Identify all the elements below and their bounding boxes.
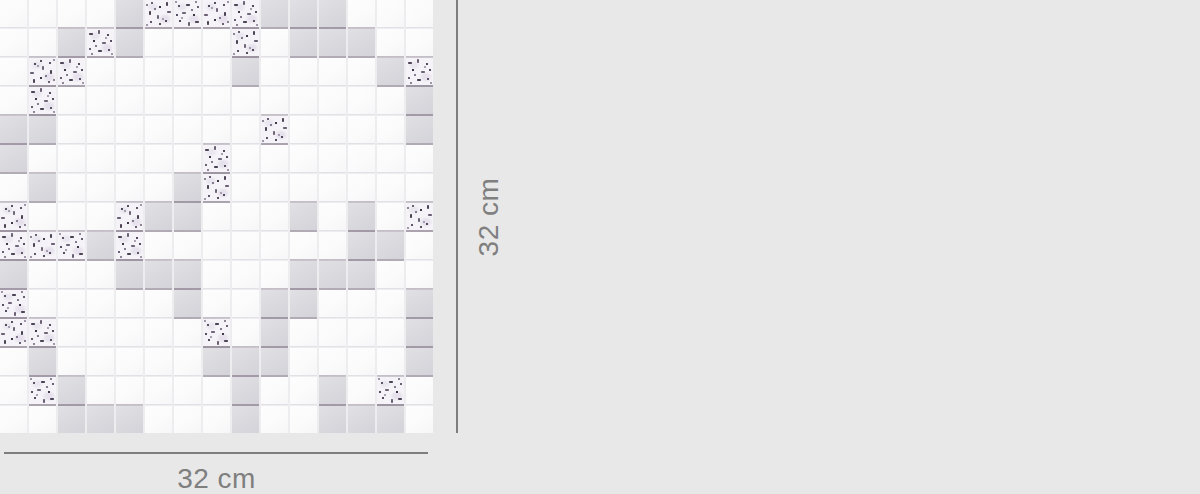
mosaic-tile <box>290 377 317 404</box>
height-dimension-text: 32 cm <box>473 177 505 256</box>
mosaic-tile <box>0 261 27 288</box>
mosaic-tile <box>406 0 433 27</box>
mosaic-tile <box>174 319 201 346</box>
mosaic-tile <box>116 0 143 27</box>
mosaic-tile <box>348 232 375 259</box>
mosaic-tile <box>406 116 433 143</box>
mosaic-tile <box>0 290 27 317</box>
mosaic-tile <box>58 290 85 317</box>
mosaic-tile <box>29 290 56 317</box>
mosaic-tile <box>261 116 288 143</box>
mosaic-tile <box>232 232 259 259</box>
mosaic-tile <box>203 261 230 288</box>
mosaic-tile <box>232 29 259 56</box>
mosaic-tile <box>377 348 404 375</box>
mosaic-tile <box>58 0 85 27</box>
mosaic-tile <box>116 203 143 230</box>
mosaic-tile <box>174 348 201 375</box>
mosaic-tile <box>348 87 375 114</box>
mosaic-tile <box>29 261 56 288</box>
mosaic-tile <box>87 0 114 27</box>
mosaic-tile <box>29 0 56 27</box>
mosaic-tile <box>319 377 346 404</box>
mosaic-tile <box>87 87 114 114</box>
mosaic-tile <box>406 29 433 56</box>
mosaic-tile <box>290 406 317 433</box>
mosaic-tile <box>145 319 172 346</box>
mosaic-tile <box>174 0 201 27</box>
mosaic-tile <box>261 0 288 27</box>
mosaic-tile <box>58 58 85 85</box>
mosaic-tile <box>261 232 288 259</box>
mosaic-tile <box>0 377 27 404</box>
mosaic-tile <box>29 406 56 433</box>
mosaic-tile <box>348 290 375 317</box>
mosaic-tile <box>87 261 114 288</box>
mosaic-tile <box>348 116 375 143</box>
mosaic-tile <box>29 29 56 56</box>
mosaic-tile <box>58 348 85 375</box>
mosaic-tile <box>145 29 172 56</box>
mosaic-tile <box>87 290 114 317</box>
mosaic-tile <box>377 377 404 404</box>
mosaic-tile <box>203 232 230 259</box>
mosaic-tile-sheet <box>0 0 433 433</box>
mosaic-tile <box>145 116 172 143</box>
mosaic-tile <box>406 348 433 375</box>
mosaic-tile <box>58 232 85 259</box>
mosaic-tile <box>0 58 27 85</box>
mosaic-tile <box>377 174 404 201</box>
mosaic-tile <box>261 377 288 404</box>
mosaic-tile <box>290 58 317 85</box>
mosaic-tile <box>116 87 143 114</box>
mosaic-tile <box>116 290 143 317</box>
mosaic-tile <box>348 0 375 27</box>
mosaic-tile <box>406 406 433 433</box>
mosaic-tile <box>319 116 346 143</box>
mosaic-tile <box>145 87 172 114</box>
mosaic-tile <box>87 348 114 375</box>
mosaic-tile <box>232 290 259 317</box>
mosaic-tile <box>174 145 201 172</box>
mosaic-tile <box>232 58 259 85</box>
mosaic-tile <box>348 29 375 56</box>
mosaic-tile <box>348 319 375 346</box>
mosaic-tile <box>58 116 85 143</box>
mosaic-tile <box>145 406 172 433</box>
mosaic-tile <box>406 145 433 172</box>
mosaic-tile <box>319 87 346 114</box>
mosaic-tile <box>319 406 346 433</box>
mosaic-tile <box>58 29 85 56</box>
mosaic-tile <box>87 116 114 143</box>
mosaic-tile <box>58 203 85 230</box>
mosaic-tile <box>348 348 375 375</box>
mosaic-tile <box>232 203 259 230</box>
mosaic-tile <box>0 319 27 346</box>
mosaic-tile <box>87 29 114 56</box>
mosaic-tile <box>0 0 27 27</box>
mosaic-tile <box>377 0 404 27</box>
mosaic-tile <box>377 145 404 172</box>
mosaic-tile <box>261 203 288 230</box>
mosaic-tile <box>377 29 404 56</box>
mosaic-tile <box>29 58 56 85</box>
mosaic-tile <box>348 145 375 172</box>
mosaic-tile <box>290 232 317 259</box>
mosaic-tile <box>203 145 230 172</box>
mosaic-tile <box>261 406 288 433</box>
mosaic-tile <box>290 87 317 114</box>
mosaic-tile <box>261 290 288 317</box>
mosaic-tile <box>116 261 143 288</box>
mosaic-tile <box>87 145 114 172</box>
mosaic-tile <box>203 406 230 433</box>
mosaic-tile <box>58 261 85 288</box>
mosaic-tile <box>116 58 143 85</box>
mosaic-tile <box>406 203 433 230</box>
width-dimension-line <box>4 452 428 454</box>
mosaic-tile <box>174 116 201 143</box>
mosaic-tile <box>0 116 27 143</box>
mosaic-tile <box>145 0 172 27</box>
mosaic-tile <box>319 348 346 375</box>
mosaic-tile <box>319 29 346 56</box>
mosaic-tile <box>319 261 346 288</box>
mosaic-tile <box>58 145 85 172</box>
mosaic-tile <box>290 116 317 143</box>
mosaic-tile <box>29 174 56 201</box>
mosaic-tile <box>290 319 317 346</box>
mosaic-tile <box>116 406 143 433</box>
mosaic-tile <box>87 319 114 346</box>
mosaic-tile <box>29 319 56 346</box>
mosaic-tile <box>319 290 346 317</box>
mosaic-tile <box>203 319 230 346</box>
mosaic-tile <box>290 261 317 288</box>
mosaic-tile <box>232 116 259 143</box>
mosaic-tile <box>290 203 317 230</box>
mosaic-tile <box>406 58 433 85</box>
mosaic-tile <box>174 232 201 259</box>
mosaic-tile <box>377 232 404 259</box>
mosaic-tile <box>406 174 433 201</box>
mosaic-tile <box>348 174 375 201</box>
mosaic-tile <box>261 319 288 346</box>
mosaic-tile <box>203 58 230 85</box>
mosaic-tile <box>145 174 172 201</box>
mosaic-tile <box>348 377 375 404</box>
mosaic-tile <box>232 174 259 201</box>
mosaic-tile <box>58 174 85 201</box>
mosaic-tile <box>290 348 317 375</box>
mosaic-tile <box>116 377 143 404</box>
mosaic-tile <box>87 406 114 433</box>
mosaic-tile <box>377 116 404 143</box>
mosaic-tile <box>174 174 201 201</box>
mosaic-tile <box>290 0 317 27</box>
mosaic-tile <box>145 58 172 85</box>
mosaic-tile <box>0 174 27 201</box>
mosaic-tile <box>232 377 259 404</box>
mosaic-tile <box>348 203 375 230</box>
mosaic-tile <box>319 145 346 172</box>
mosaic-tile <box>406 87 433 114</box>
mosaic-tile <box>145 203 172 230</box>
mosaic-tile <box>406 232 433 259</box>
mosaic-tile <box>0 29 27 56</box>
mosaic-tile <box>377 203 404 230</box>
height-dimension-line <box>456 0 458 433</box>
mosaic-tile <box>406 319 433 346</box>
mosaic-tile <box>203 116 230 143</box>
mosaic-tile <box>377 261 404 288</box>
mosaic-tile <box>116 116 143 143</box>
mosaic-tile <box>319 58 346 85</box>
mosaic-tile <box>319 0 346 27</box>
mosaic-tile <box>87 377 114 404</box>
mosaic-tile <box>319 203 346 230</box>
mosaic-tile <box>377 290 404 317</box>
mosaic-tile <box>261 29 288 56</box>
mosaic-tile <box>203 348 230 375</box>
mosaic-tile <box>116 29 143 56</box>
mosaic-tile <box>174 290 201 317</box>
mosaic-tile <box>58 319 85 346</box>
product-image: 32 cm 32 cm <box>0 0 1200 494</box>
mosaic-tile <box>232 319 259 346</box>
mosaic-tile <box>174 261 201 288</box>
mosaic-tile <box>145 145 172 172</box>
mosaic-tile <box>203 29 230 56</box>
height-dimension-label: 32 cm <box>472 0 506 433</box>
mosaic-tile <box>0 232 27 259</box>
mosaic-tile <box>29 377 56 404</box>
mosaic-tile <box>174 377 201 404</box>
mosaic-tile <box>203 0 230 27</box>
mosaic-tile <box>174 58 201 85</box>
mosaic-tile <box>261 261 288 288</box>
mosaic-tile <box>406 290 433 317</box>
mosaic-tile <box>406 261 433 288</box>
mosaic-tile <box>377 319 404 346</box>
mosaic-tile <box>174 203 201 230</box>
mosaic-tile <box>232 348 259 375</box>
mosaic-tile <box>145 232 172 259</box>
mosaic-tile <box>116 174 143 201</box>
mosaic-tile <box>261 174 288 201</box>
mosaic-tile <box>348 406 375 433</box>
mosaic-tile <box>145 261 172 288</box>
mosaic-tile <box>290 290 317 317</box>
mosaic-tile <box>261 348 288 375</box>
mosaic-tile <box>261 58 288 85</box>
mosaic-tile <box>203 174 230 201</box>
mosaic-tile <box>87 174 114 201</box>
mosaic-tile <box>203 203 230 230</box>
mosaic-tile <box>261 145 288 172</box>
mosaic-tile <box>232 406 259 433</box>
mosaic-tile <box>0 203 27 230</box>
mosaic-tile <box>232 0 259 27</box>
mosaic-tile <box>29 116 56 143</box>
mosaic-tile <box>145 377 172 404</box>
mosaic-tile <box>203 377 230 404</box>
mosaic-tile <box>232 87 259 114</box>
mosaic-tile <box>29 87 56 114</box>
mosaic-tile <box>174 29 201 56</box>
mosaic-tile <box>145 348 172 375</box>
mosaic-tile <box>116 232 143 259</box>
mosaic-tile <box>232 145 259 172</box>
mosaic-tile <box>87 58 114 85</box>
mosaic-tile <box>58 377 85 404</box>
mosaic-tile <box>377 406 404 433</box>
mosaic-tile <box>290 29 317 56</box>
mosaic-tile <box>0 87 27 114</box>
mosaic-tile <box>261 87 288 114</box>
mosaic-tile <box>290 145 317 172</box>
mosaic-tile <box>232 261 259 288</box>
mosaic-tile <box>319 232 346 259</box>
mosaic-tile <box>377 87 404 114</box>
mosaic-tile <box>377 58 404 85</box>
mosaic-tile <box>319 319 346 346</box>
mosaic-tile <box>0 145 27 172</box>
mosaic-tile <box>203 87 230 114</box>
mosaic-tile <box>174 87 201 114</box>
mosaic-tile <box>348 58 375 85</box>
mosaic-tile <box>29 203 56 230</box>
mosaic-tile <box>348 261 375 288</box>
mosaic-tile <box>58 87 85 114</box>
mosaic-tile <box>319 174 346 201</box>
width-dimension-label: 32 cm <box>0 463 433 494</box>
mosaic-tile <box>290 174 317 201</box>
mosaic-tile <box>203 290 230 317</box>
mosaic-tile <box>0 348 27 375</box>
mosaic-tile <box>406 377 433 404</box>
mosaic-tile <box>0 406 27 433</box>
mosaic-tile <box>29 145 56 172</box>
mosaic-tile <box>58 406 85 433</box>
mosaic-tile <box>29 232 56 259</box>
mosaic-tile <box>145 290 172 317</box>
mosaic-tile <box>29 348 56 375</box>
mosaic-tile <box>174 406 201 433</box>
mosaic-tile <box>116 145 143 172</box>
mosaic-tile <box>87 232 114 259</box>
width-dimension-text: 32 cm <box>177 463 256 494</box>
mosaic-tile <box>87 203 114 230</box>
mosaic-tile <box>116 348 143 375</box>
mosaic-tile <box>116 319 143 346</box>
